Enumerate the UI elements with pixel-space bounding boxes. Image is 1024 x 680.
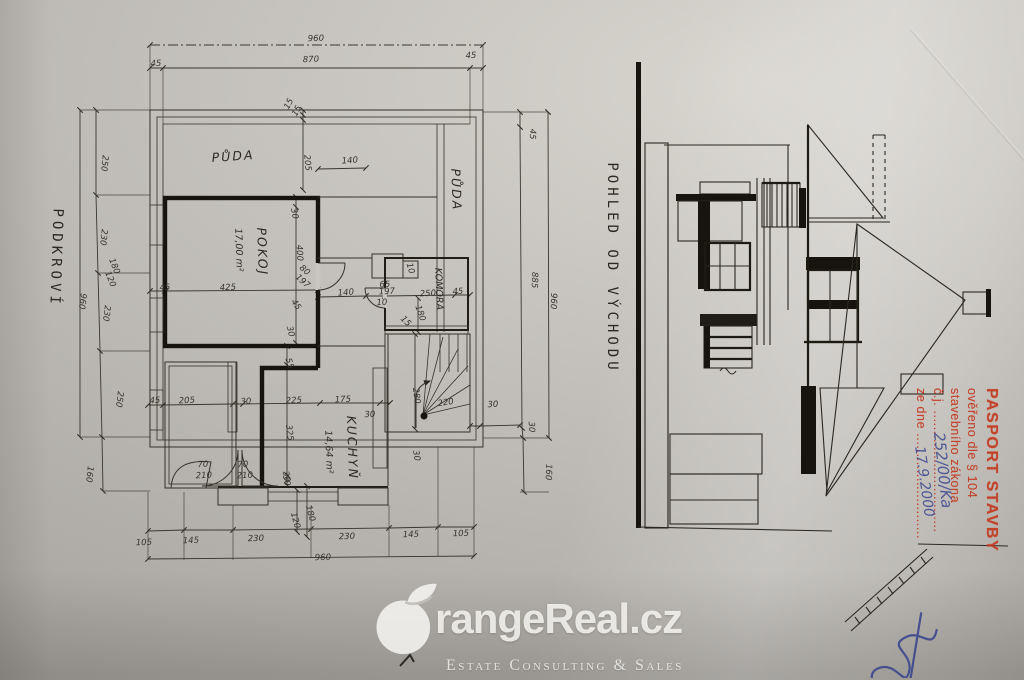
orange-logo-icon bbox=[374, 582, 440, 656]
dim-label: 960 bbox=[76, 293, 88, 310]
dim-label: 175 bbox=[335, 395, 352, 406]
dim-label: 45 bbox=[149, 396, 160, 407]
balcony-rail-opening bbox=[704, 326, 752, 368]
dim-label: 230 bbox=[339, 532, 356, 543]
room-label-puda-left: PŮDA bbox=[211, 147, 255, 165]
dim-label: 960 bbox=[548, 293, 559, 310]
dim-label: 30 bbox=[240, 397, 251, 408]
floor-title: PODKROVÍ bbox=[46, 208, 66, 308]
room-label-kuchyn: KUCHYŇ bbox=[344, 415, 361, 480]
dim-label: 325 bbox=[283, 424, 295, 441]
dim-label: 400 bbox=[294, 245, 305, 262]
dim-label: 45 bbox=[465, 51, 476, 61]
dark-doorway bbox=[801, 386, 816, 474]
dim-label: 30 bbox=[364, 410, 375, 421]
dim-label: 197 bbox=[379, 287, 396, 298]
room-label-puda-right: PŮDA bbox=[448, 168, 464, 211]
porch-shadow bbox=[820, 388, 884, 492]
pencil-scribble bbox=[720, 368, 736, 374]
dim-label: 960 bbox=[308, 34, 325, 45]
dim-label: 180 bbox=[303, 504, 317, 522]
dim-label: 45 bbox=[150, 59, 161, 69]
dim-label: 250 bbox=[113, 391, 125, 408]
watermark: rangeReal.cz Estate Consulting & Sales bbox=[374, 582, 686, 675]
dim-label: 10 bbox=[404, 262, 417, 275]
dim-label: 105 bbox=[136, 538, 153, 549]
floor-plan-drawing: 9604587045151520514025023018012096023025… bbox=[46, 34, 558, 564]
room-area-kuchyn: 14,64 m² bbox=[322, 430, 335, 474]
dim-label: 225 bbox=[286, 396, 303, 407]
dim-label: 160 bbox=[543, 464, 554, 481]
photographed-drawing-sheet: 9604587045151520514025023018012096023025… bbox=[0, 0, 1024, 680]
dim-label: 210 bbox=[196, 471, 213, 482]
dim-label: 45 bbox=[159, 283, 170, 294]
dim-label: 145 bbox=[403, 530, 420, 541]
eave-finial bbox=[963, 292, 987, 314]
hallway-chimney bbox=[318, 197, 437, 278]
dim-label: 30 bbox=[410, 449, 422, 461]
dim-label: 30 bbox=[526, 421, 536, 432]
dim-label: 140 bbox=[337, 287, 354, 298]
dim-label: 205 bbox=[301, 154, 312, 171]
dim-label: 15 bbox=[398, 314, 413, 329]
staircase bbox=[385, 334, 470, 432]
dim-label: 120 bbox=[288, 511, 302, 529]
dim-label: 30 bbox=[288, 207, 300, 219]
dim-label: 10 bbox=[376, 298, 387, 309]
balustrade bbox=[762, 183, 800, 227]
dim-label: 230 bbox=[248, 534, 265, 545]
signature-ink bbox=[838, 578, 988, 678]
dim-label: 210 bbox=[237, 471, 254, 482]
elevation-title: POHLED OD VÝCHODU bbox=[604, 162, 621, 373]
dim-label: 160 bbox=[83, 466, 95, 483]
dim-label: 145 bbox=[183, 536, 200, 547]
dim-label: 70 bbox=[197, 460, 208, 471]
dim-label: 885 bbox=[529, 272, 540, 289]
dim-label: 180 bbox=[412, 304, 427, 323]
dim-label: 45 bbox=[288, 298, 302, 313]
dim-label: 960 bbox=[315, 553, 332, 564]
dim-label: 105 bbox=[453, 529, 470, 540]
dim-label: 230 bbox=[97, 229, 109, 246]
dim-label: 70 bbox=[237, 460, 248, 471]
dim-label: 870 bbox=[303, 55, 320, 66]
dim-label: 45 bbox=[452, 287, 463, 298]
door-arc-pokoj bbox=[318, 263, 345, 290]
dim-label: 30 bbox=[487, 400, 498, 411]
dim-label: 250 bbox=[98, 155, 110, 172]
dim-label: 30 bbox=[284, 325, 296, 338]
dim-label: 205 bbox=[179, 396, 196, 407]
watermark-tagline: Estate Consulting & Sales bbox=[374, 657, 686, 675]
dim-label: 140 bbox=[341, 155, 358, 166]
dim-label: 425 bbox=[220, 283, 237, 294]
border-bar bbox=[636, 62, 641, 528]
room-label-pokoj: POKOJ bbox=[254, 227, 271, 276]
dim-label: 220 bbox=[437, 397, 454, 409]
dim-label: 280 bbox=[410, 387, 422, 404]
window1-six-pane bbox=[705, 243, 750, 290]
room-pokoj-walls bbox=[150, 198, 345, 430]
room-label-komora: KOMORA bbox=[432, 268, 444, 311]
watermark-brand: rangeReal.cz bbox=[435, 595, 682, 643]
dim-label: 230 bbox=[100, 305, 112, 322]
stone-chimney bbox=[645, 143, 668, 528]
room-area-pokoj: 17,00 m² bbox=[232, 228, 245, 272]
dim-label: 45 bbox=[527, 128, 537, 139]
window2-four-pane bbox=[804, 257, 862, 342]
